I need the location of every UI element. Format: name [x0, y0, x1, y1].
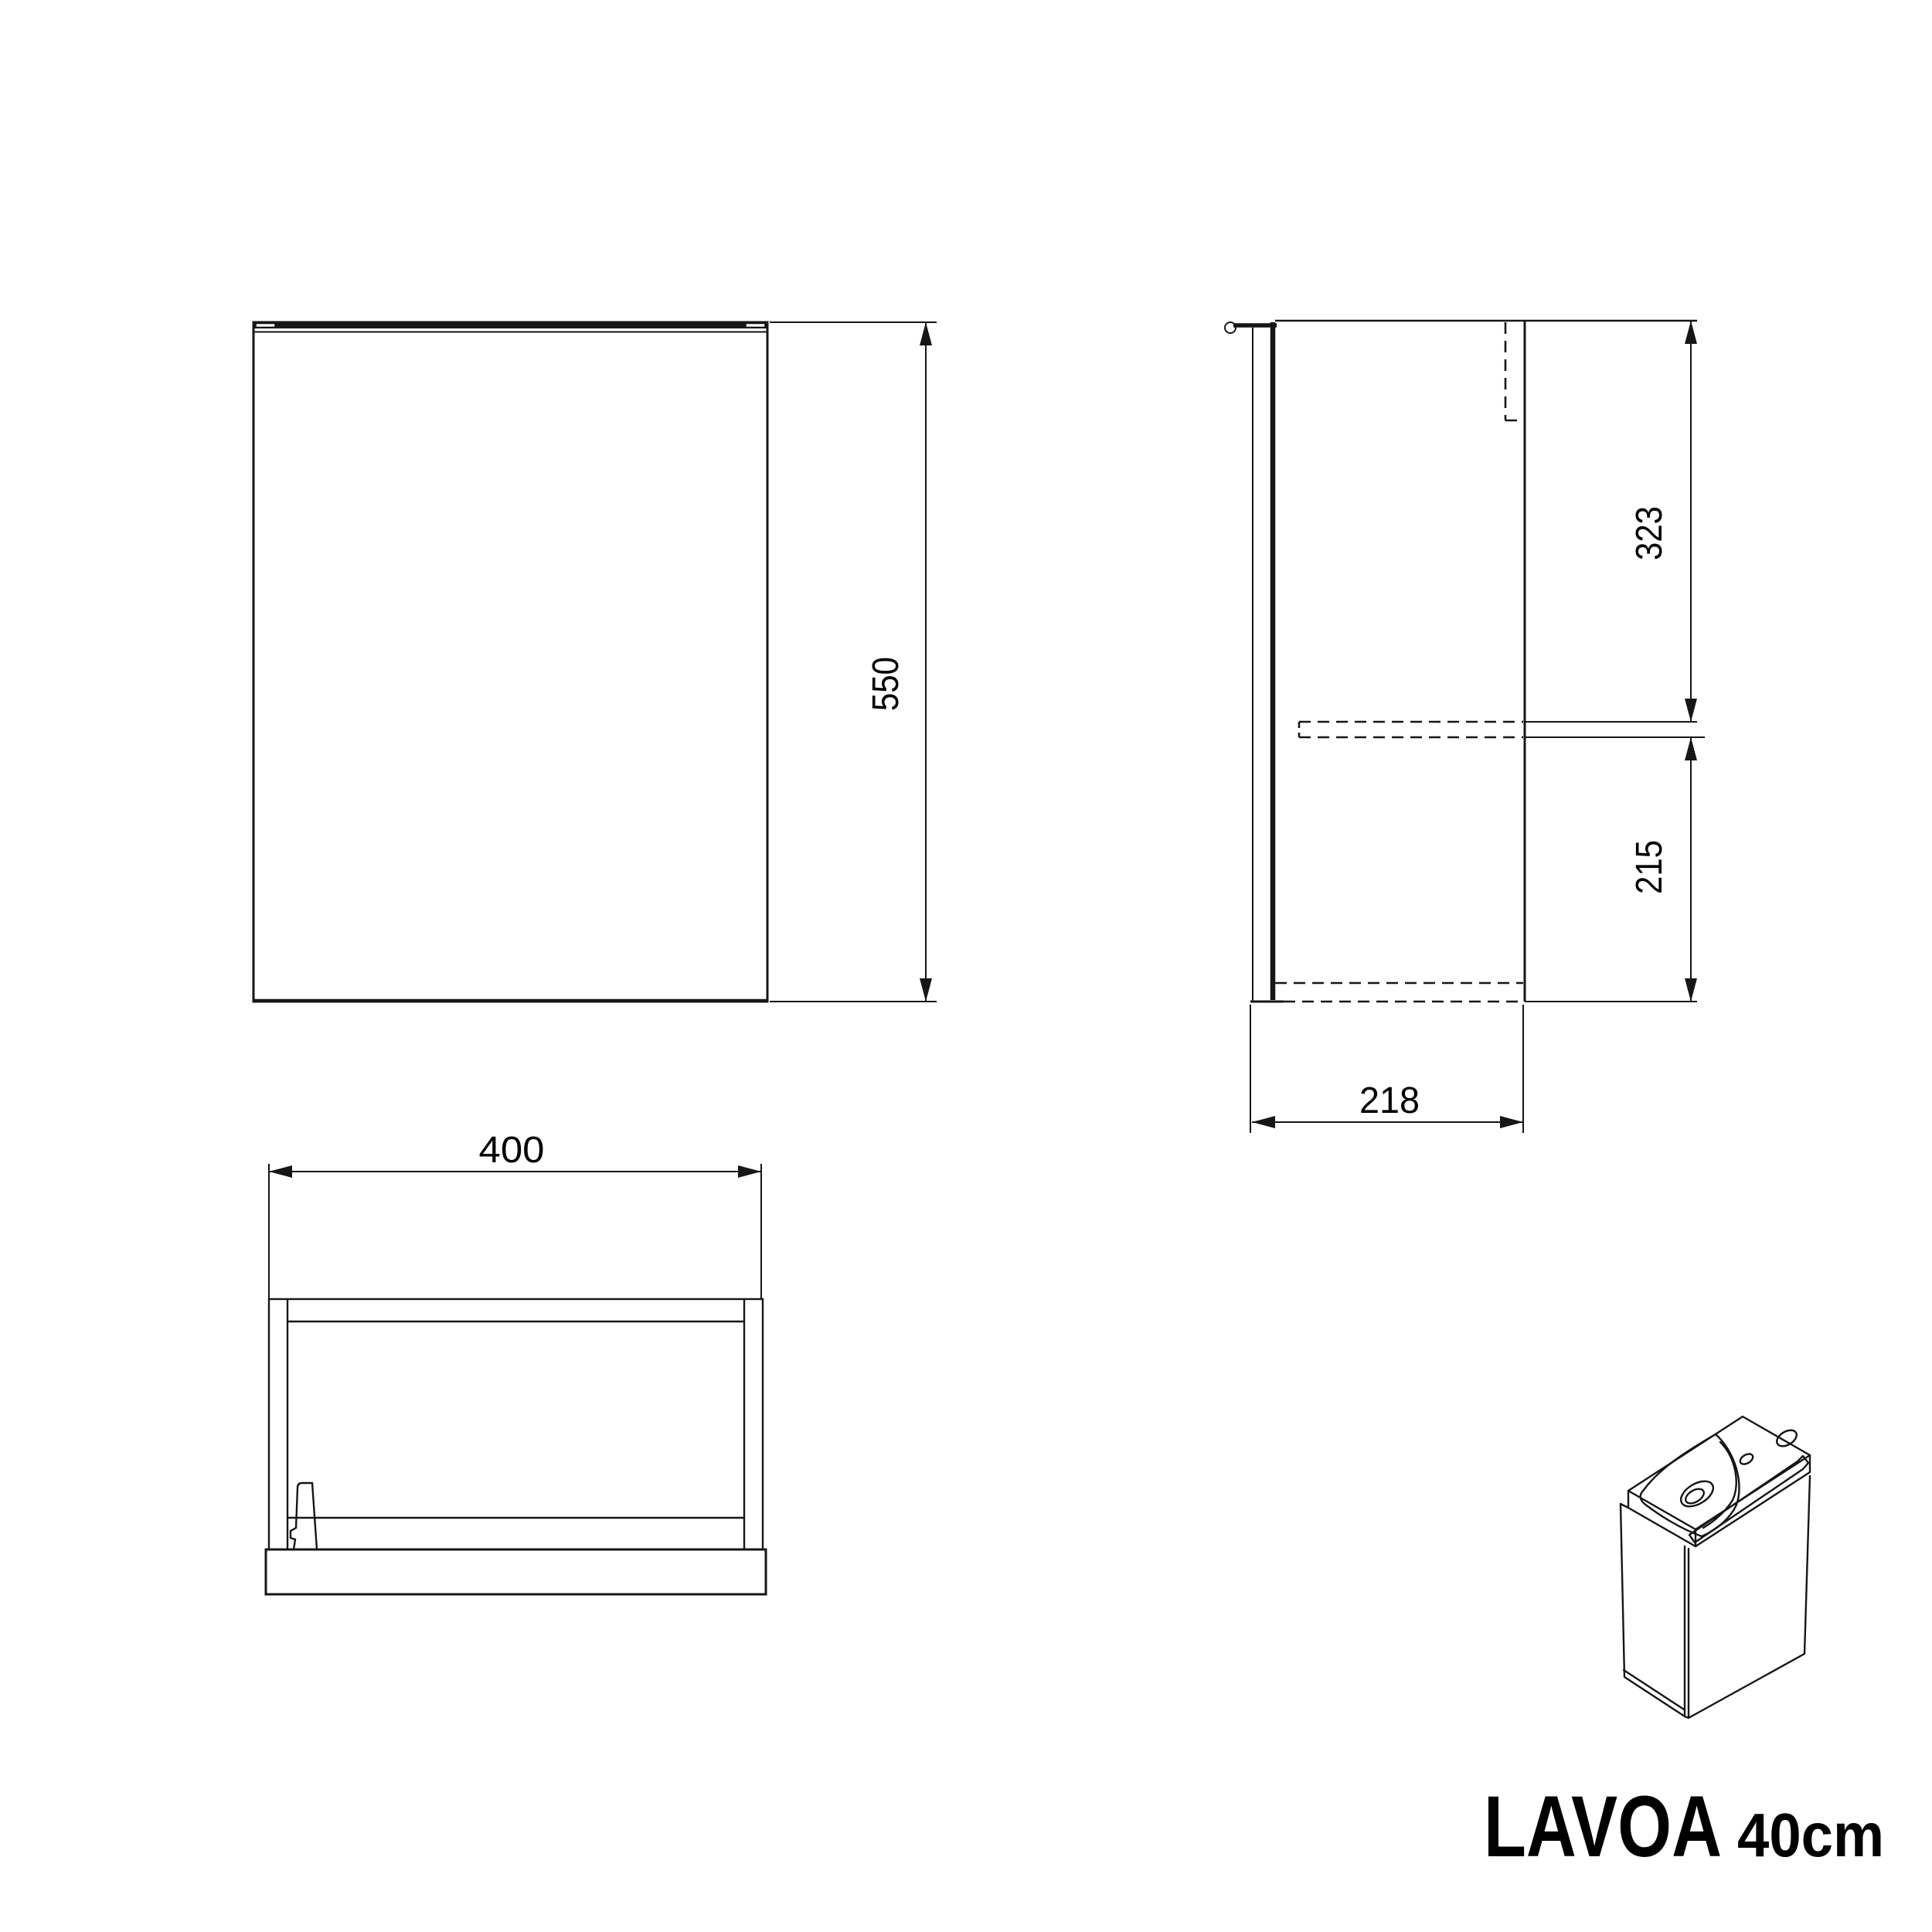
front-view — [253, 322, 767, 1002]
cabinet-bottom-panel-line — [1624, 1670, 1684, 1709]
basin-slab-right-face — [1696, 1455, 1810, 1546]
arrowhead-up-icon — [1685, 737, 1697, 760]
arrowhead-down-icon — [920, 978, 932, 1002]
door-front-edge-band — [266, 1549, 766, 1594]
carcass-outline — [269, 1299, 763, 1549]
door-panel-outline — [253, 322, 767, 1002]
product-size-text: 40cm — [1737, 1801, 1884, 1869]
arrowhead-up-icon — [920, 322, 932, 345]
drawing-canvas: 550 323 215 — [0, 0, 1932, 1932]
dimension-label-height: 550 — [866, 657, 906, 711]
top-panel-edge-band — [253, 322, 767, 328]
arrowhead-left-icon — [269, 1165, 292, 1178]
arrowhead-down-icon — [1685, 699, 1697, 722]
dimension-label-width: 400 — [479, 1130, 545, 1171]
arrowhead-down-icon — [1685, 978, 1697, 1002]
cabinet-outline — [1621, 1476, 1810, 1718]
arrowhead-right-icon — [738, 1165, 761, 1178]
dimension-side-depth: 218 — [1250, 1005, 1523, 1133]
side-view — [1225, 321, 1705, 1002]
dimension-front-height: 550 — [770, 322, 937, 1002]
overflow-hole-icon — [1738, 1452, 1754, 1467]
dimension-side-lower: 215 — [1629, 737, 1697, 1002]
product-name-text: LAVOA — [1484, 1778, 1722, 1875]
dimension-front-width: 400 — [269, 1130, 761, 1299]
arrowhead-up-icon — [1685, 321, 1697, 344]
arrowhead-left-icon — [1252, 1116, 1275, 1128]
arrowhead-right-icon — [1500, 1116, 1523, 1128]
top-panel-left-end-cap — [256, 324, 275, 328]
technical-drawing-page: 550 323 215 — [0, 0, 1932, 1932]
dimension-label-depth: 218 — [1359, 1080, 1420, 1121]
dimension-label-lower: 215 — [1629, 840, 1670, 894]
product-title: LAVOA 40cm — [1484, 1778, 1884, 1875]
dimension-side-upper: 323 — [1629, 321, 1697, 722]
isometric-pictogram — [1621, 1417, 1810, 1718]
dimension-label-upper: 323 — [1629, 506, 1670, 560]
siphon-outline — [291, 1483, 317, 1549]
top-panel-right-end-cap — [746, 324, 765, 328]
cabinet-top-left-sliver — [1621, 1504, 1628, 1508]
drain-outer-ring-icon — [1677, 1476, 1718, 1512]
bottom-view — [266, 1299, 766, 1594]
